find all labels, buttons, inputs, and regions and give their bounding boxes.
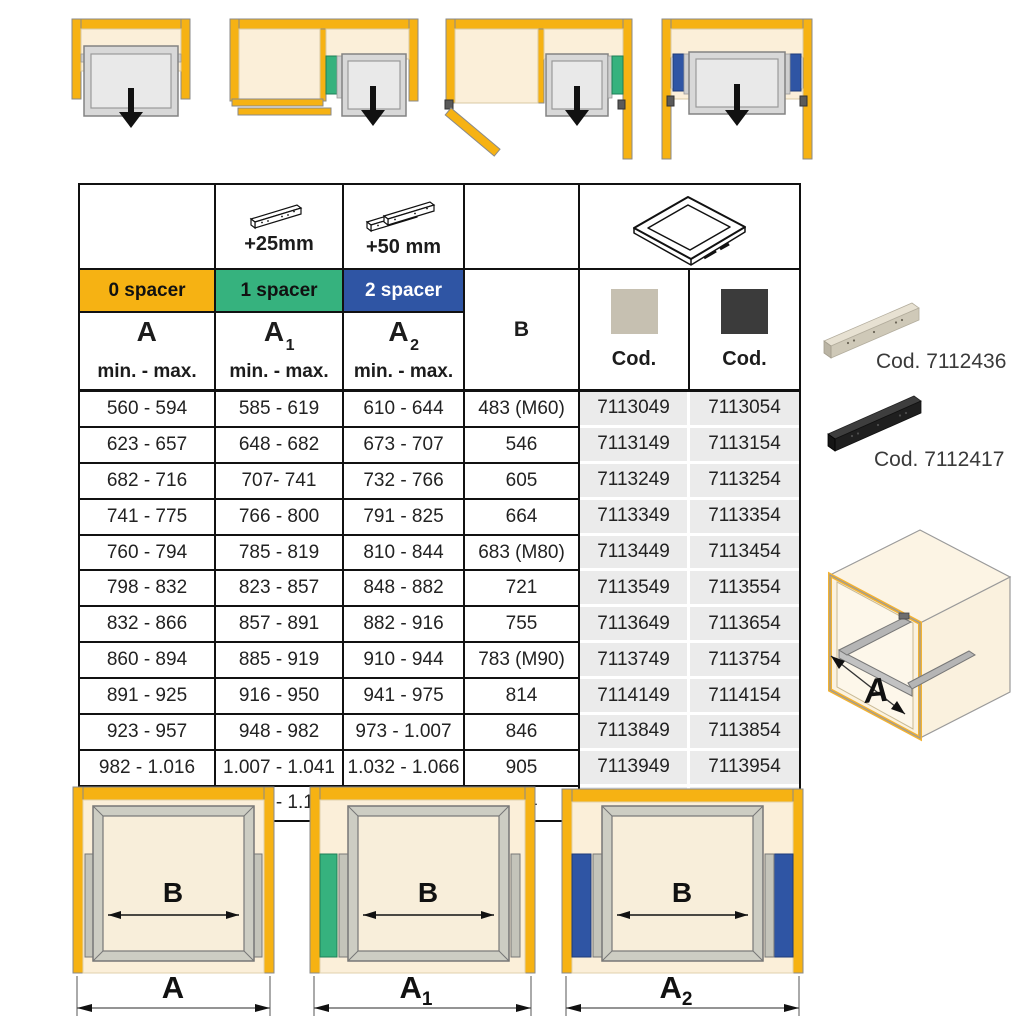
code-cell: 7113749 <box>580 643 690 679</box>
dimension-cell: 891 - 925 <box>80 679 216 715</box>
rail <box>511 854 520 957</box>
col-a-header: A min. - max. <box>80 313 216 392</box>
code-cell: 7113554 <box>690 571 799 607</box>
dimension-cell: 605 <box>465 464 580 500</box>
dimension-cell: 1.007 - 1.041 <box>216 751 344 787</box>
dimension-cell: 814 <box>465 679 580 715</box>
dimension-cell: 610 - 644 <box>344 392 465 428</box>
table-row: 832 - 866857 - 891882 - 9167557113649711… <box>80 607 799 643</box>
code-cell: 7113349 <box>580 500 690 536</box>
blue-spacer <box>572 854 591 957</box>
b-label: B <box>163 877 183 908</box>
gray-swatch <box>611 289 658 334</box>
dimension-cell: 810 - 844 <box>344 536 465 572</box>
table-row: 923 - 957948 - 982973 - 1.00784671138497… <box>80 715 799 751</box>
dimension-cell: 885 - 919 <box>216 643 344 679</box>
one-spacer-bar-icon <box>248 197 310 231</box>
green-spacer <box>612 56 623 94</box>
code-cell: 7113949 <box>580 751 690 787</box>
dimension-cell: 846 <box>465 715 580 751</box>
rail <box>339 854 348 957</box>
top-diagram-drawer-cabinet <box>68 14 194 160</box>
dimension-table: +25mm <box>78 183 801 822</box>
b-label: B <box>672 877 692 908</box>
code-cell: 7113149 <box>580 428 690 464</box>
two-spacer-badge: 2 spacer <box>344 270 465 313</box>
dimension-cell: 982 - 1.016 <box>80 751 216 787</box>
code-cell: 7113849 <box>580 715 690 751</box>
plus50-label: +50 mm <box>344 236 463 259</box>
dimension-cell: 623 - 657 <box>80 428 216 464</box>
bottom-diagram-a1: B A1 <box>306 784 539 1024</box>
two-spacer-bars-icon <box>364 194 444 234</box>
cod-label: Cod. <box>580 348 688 371</box>
dimension-cell: 741 - 775 <box>80 500 216 536</box>
outer-width-a-dimension: A <box>77 970 270 1016</box>
cabinet-3d-diagram: A <box>815 520 1015 750</box>
dimension-cell: 648 - 682 <box>216 428 344 464</box>
header-empty-cell <box>80 185 216 270</box>
bottom-diagram-a: B A <box>66 784 281 1024</box>
open-door <box>445 108 500 156</box>
table-row: 560 - 594585 - 619610 - 644483 (M60)7113… <box>80 392 799 428</box>
dimension-cell: 948 - 982 <box>216 715 344 751</box>
table-row: 860 - 894885 - 919910 - 944783 (M90)7113… <box>80 643 799 679</box>
dimension-cell: 483 (M60) <box>465 392 580 428</box>
dimension-cell: 1.032 - 1.066 <box>344 751 465 787</box>
green-spacer <box>326 56 337 94</box>
plus25-label: +25mm <box>216 233 342 256</box>
frame-product-icon <box>624 188 756 266</box>
table-row: 798 - 832823 - 857848 - 8827217113549711… <box>80 571 799 607</box>
dimension-cell: 916 - 950 <box>216 679 344 715</box>
code-cell: 7113754 <box>690 643 799 679</box>
dimension-cell: 923 - 957 <box>80 715 216 751</box>
dimension-cell: 905 <box>465 751 580 787</box>
header-plus25-cell: +25mm <box>216 185 344 270</box>
dimension-cell: 783 (M90) <box>465 643 580 679</box>
code-cell: 7113354 <box>690 500 799 536</box>
table-row: 760 - 794785 - 819810 - 844683 (M80)7113… <box>80 536 799 572</box>
table-row: 741 - 775766 - 800791 - 8256647113349711… <box>80 500 799 536</box>
code-cell: 7113154 <box>690 428 799 464</box>
black-spacer-code-label: Cod. 7112417 <box>874 448 1004 472</box>
catalog-page: +25mm <box>0 0 1024 1024</box>
dimension-cell: 832 - 866 <box>80 607 216 643</box>
green-spacer <box>320 854 337 957</box>
dimension-cell: 683 (M80) <box>465 536 580 572</box>
code-cell: 7113054 <box>690 392 799 428</box>
dimension-cell: 766 - 800 <box>216 500 344 536</box>
dimension-cell: 823 - 857 <box>216 571 344 607</box>
beige-spacer-code-label: Cod. 7112436 <box>876 350 1006 374</box>
code-cell: 7113954 <box>690 751 799 787</box>
table-row: 623 - 657648 - 682673 - 7075467113149711… <box>80 428 799 464</box>
code-cell: 7114154 <box>690 679 799 715</box>
header-empty-b-cell <box>465 185 580 270</box>
code-cell: 7113454 <box>690 536 799 572</box>
a-label: A <box>861 671 890 711</box>
dimension-cell: 882 - 916 <box>344 607 465 643</box>
dimension-cell: 560 - 594 <box>80 392 216 428</box>
code-cell: 7113254 <box>690 464 799 500</box>
hinge-icon <box>800 96 807 106</box>
dimension-cell: 585 - 619 <box>216 392 344 428</box>
code-cell: 7113854 <box>690 715 799 751</box>
zero-spacer-badge: 0 spacer <box>80 270 216 313</box>
hinge-icon <box>618 100 625 109</box>
code-cell: 7113649 <box>580 607 690 643</box>
dimension-cell: 857 - 891 <box>216 607 344 643</box>
dimension-cell: 785 - 819 <box>216 536 344 572</box>
blue-spacer <box>790 54 801 91</box>
b-label: B <box>418 877 438 908</box>
dimension-cell: 910 - 944 <box>344 643 465 679</box>
top-diagram-double-cabinet-one-spacer <box>227 14 421 164</box>
dimension-cell: 860 - 894 <box>80 643 216 679</box>
code-cell: 7114149 <box>580 679 690 715</box>
table-row: 682 - 716707- 741732 - 76660571132497113… <box>80 464 799 500</box>
code-cell: 7113654 <box>690 607 799 643</box>
col-b-header: B <box>465 270 580 392</box>
hinge-icon <box>667 96 674 106</box>
outer-width-a1-dimension: A1 <box>314 970 531 1016</box>
top-diagram-door-cabinet-one-spacer <box>442 14 636 166</box>
blue-spacer <box>673 54 684 91</box>
outer-width-a2-dimension: A2 <box>566 970 799 1016</box>
table-row: 891 - 925916 - 950941 - 9758147114149711… <box>80 679 799 715</box>
code-cell: 7113549 <box>580 571 690 607</box>
top-diagram-cabinet-two-spacers <box>657 14 817 166</box>
dimension-cell: 707- 741 <box>216 464 344 500</box>
black-swatch <box>721 289 768 334</box>
dimension-cell: 848 - 882 <box>344 571 465 607</box>
dimension-cell: 941 - 975 <box>344 679 465 715</box>
a2-label: A2 <box>660 970 693 1010</box>
cod-label: Cod. <box>690 348 799 371</box>
hinge-icon <box>445 100 453 109</box>
dimension-cell: 732 - 766 <box>344 464 465 500</box>
dimension-cell: 682 - 716 <box>80 464 216 500</box>
table-row: 982 - 1.0161.007 - 1.0411.032 - 1.066905… <box>80 751 799 787</box>
col-a2-header: A2 min. - max. <box>344 313 465 392</box>
col-a1-header: A1 min. - max. <box>216 313 344 392</box>
a1-label: A1 <box>400 970 433 1010</box>
shelf-plank <box>238 108 331 115</box>
col-cod-gray-header: Cod. <box>580 270 690 392</box>
dimension-cell: 664 <box>465 500 580 536</box>
dimension-cell: 721 <box>465 571 580 607</box>
code-cell: 7113249 <box>580 464 690 500</box>
dimension-cell: 798 - 832 <box>80 571 216 607</box>
col-cod-black-header: Cod. <box>690 270 799 392</box>
table-body: 560 - 594585 - 619610 - 644483 (M60)7113… <box>80 392 799 820</box>
a-label: A <box>162 970 184 1005</box>
dimension-cell: 673 - 707 <box>344 428 465 464</box>
dimension-cell: 791 - 825 <box>344 500 465 536</box>
one-spacer-badge: 1 spacer <box>216 270 344 313</box>
dimension-cell: 546 <box>465 428 580 464</box>
dimension-cell: 760 - 794 <box>80 536 216 572</box>
header-frame-icon-cell <box>580 185 799 270</box>
dimension-cell: 755 <box>465 607 580 643</box>
rail <box>765 854 774 957</box>
rail <box>593 854 602 957</box>
blue-spacer <box>774 854 793 957</box>
header-plus50-cell: +50 mm <box>344 185 465 270</box>
code-cell: 7113449 <box>580 536 690 572</box>
dimension-cell: 973 - 1.007 <box>344 715 465 751</box>
bottom-diagram-a2: B A2 <box>558 786 807 1024</box>
shelf-plank <box>232 99 323 106</box>
code-cell: 7113049 <box>580 392 690 428</box>
